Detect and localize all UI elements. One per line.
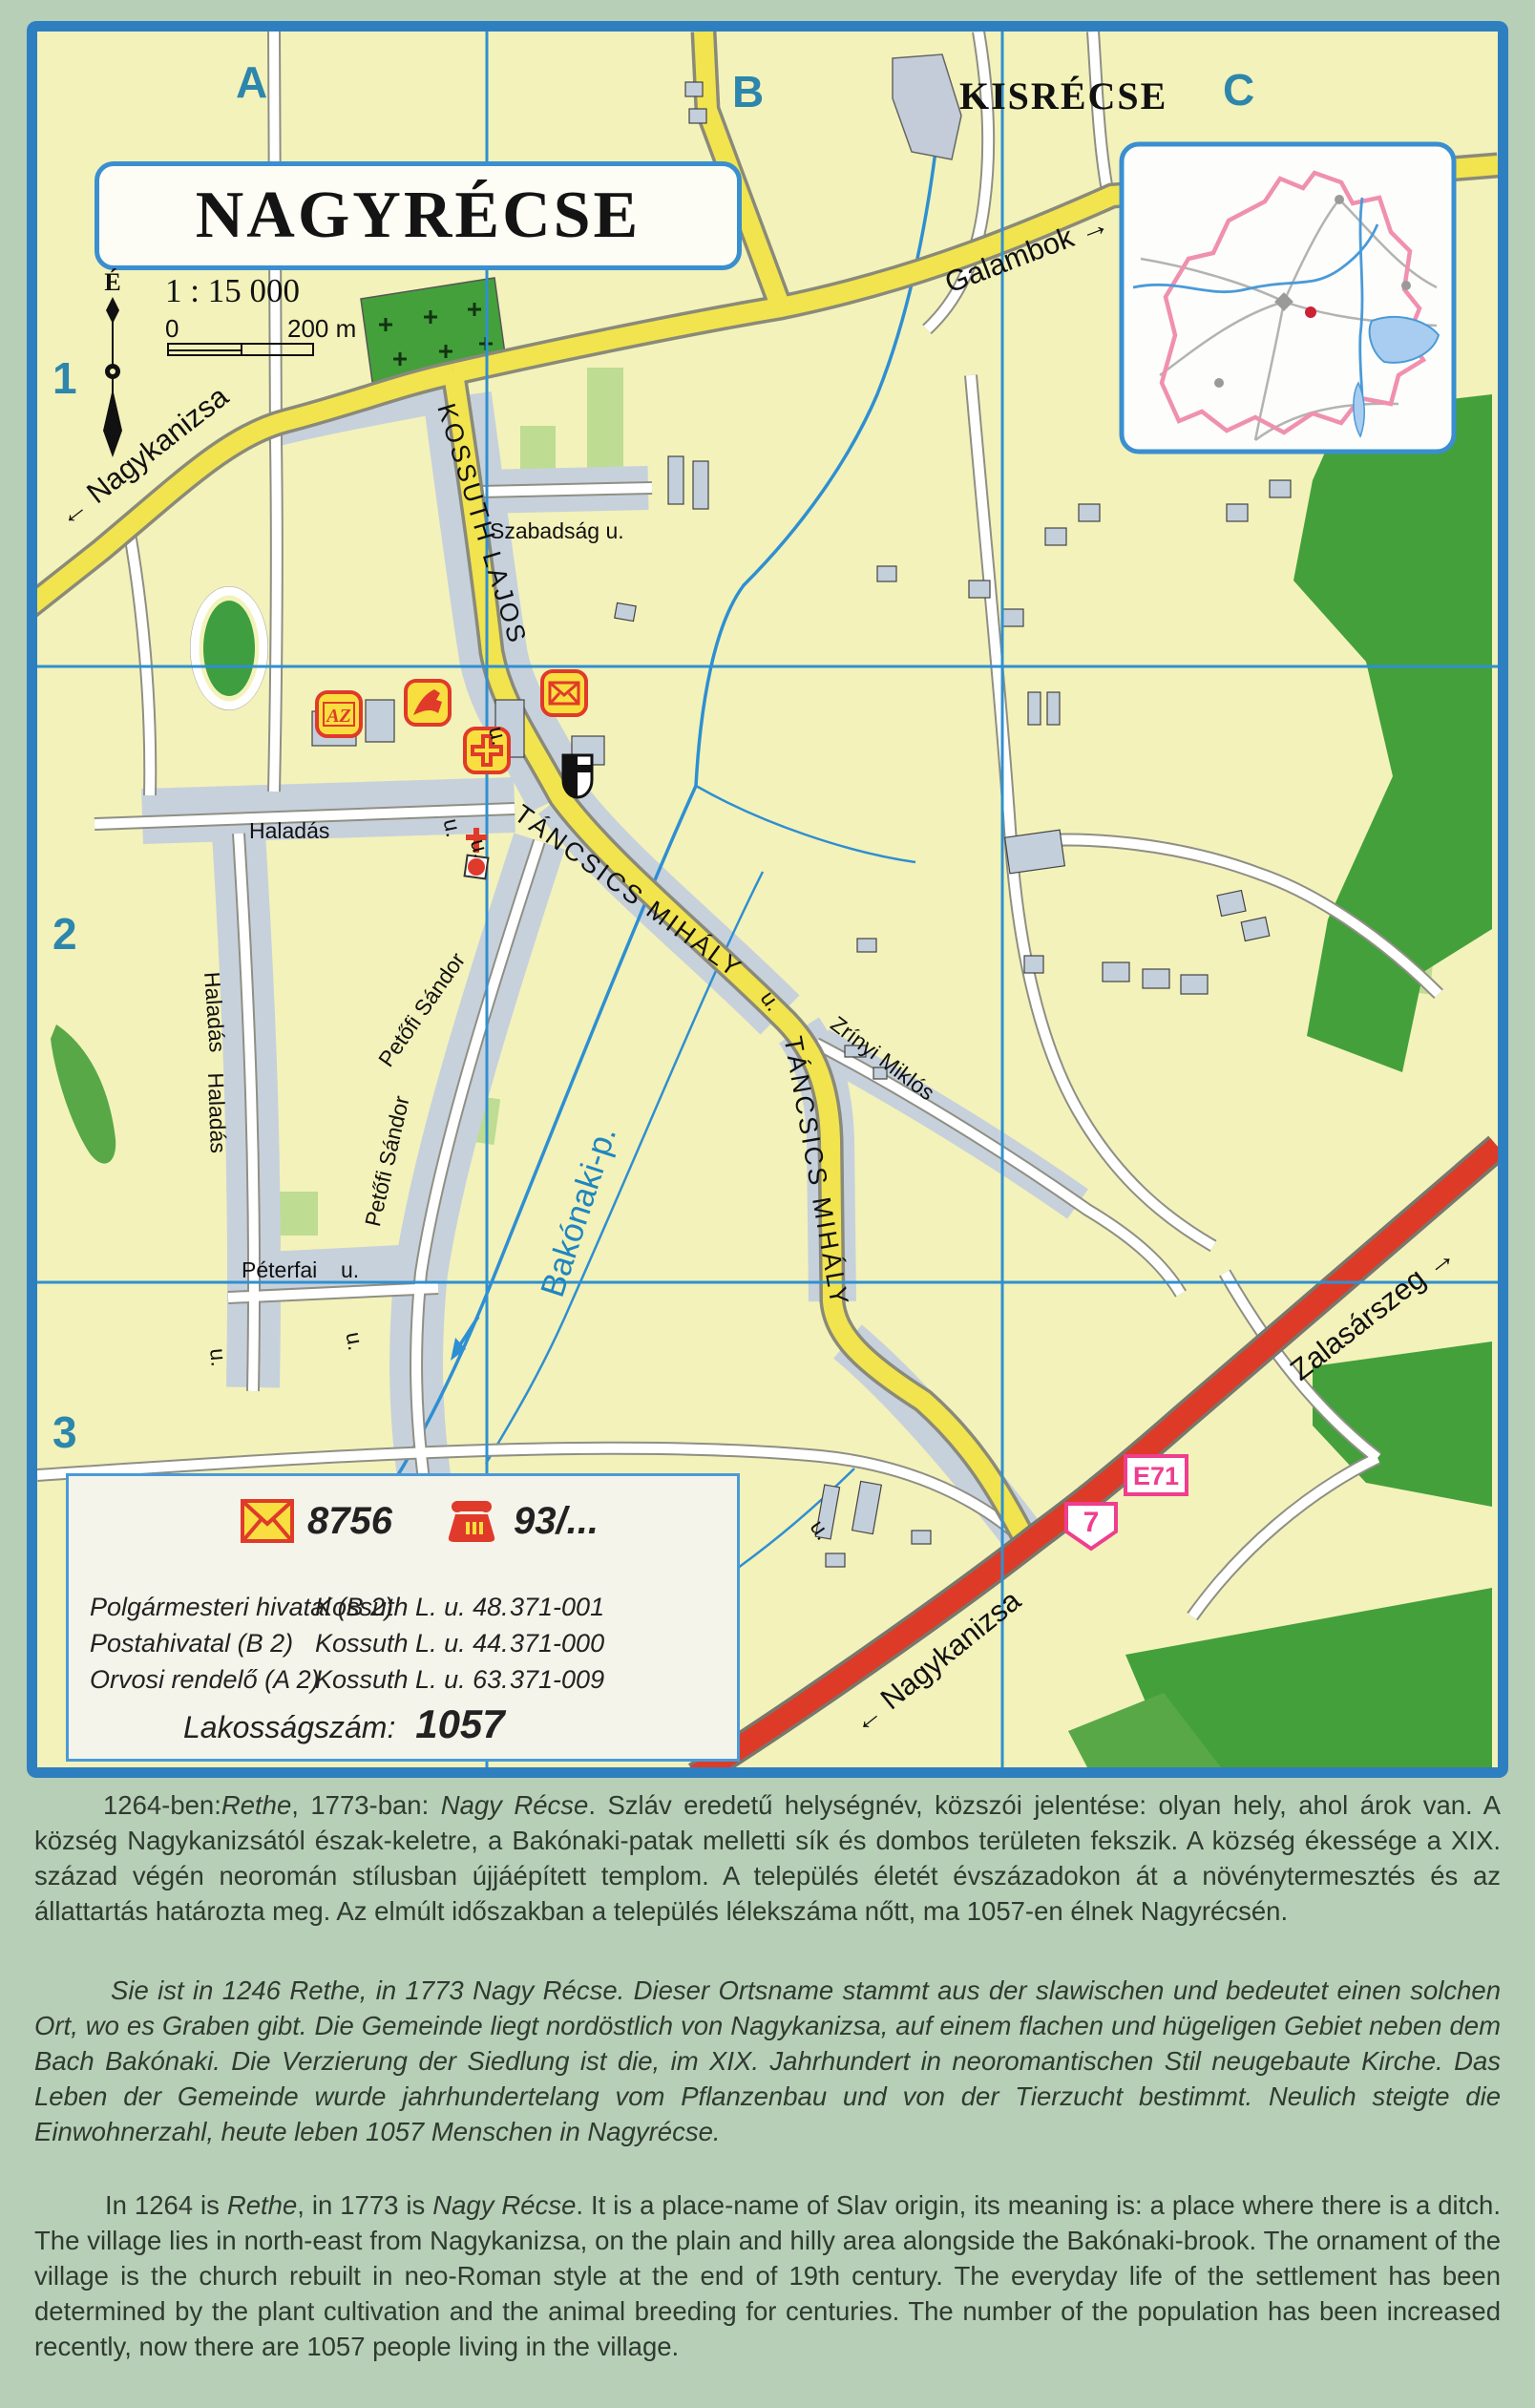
paragraph-hungarian: 1264-ben:Rethe, 1773-ban: Nagy Récse. Sz… bbox=[34, 1787, 1501, 1929]
poi-address: Kossuth L. u. 48. bbox=[315, 1593, 509, 1622]
poi-phone: 371-000 bbox=[510, 1629, 604, 1658]
svg-text:7: 7 bbox=[1083, 1507, 1100, 1538]
phone-prefix: 93/... bbox=[514, 1500, 599, 1543]
poi-address: Kossuth L. u. 44. bbox=[315, 1629, 509, 1658]
landmark-icon bbox=[406, 681, 450, 725]
poi-phone: 371-009 bbox=[510, 1665, 604, 1695]
population-line: Lakosságszám: 1057 bbox=[183, 1701, 505, 1747]
phone-icon bbox=[443, 1499, 500, 1543]
post-office-icon bbox=[542, 671, 586, 715]
postal-envelope-icon bbox=[241, 1499, 294, 1543]
medical-icon bbox=[465, 729, 509, 772]
pond bbox=[893, 54, 961, 159]
compass-needle bbox=[98, 297, 127, 457]
caption-block: 1264-ben:Rethe, 1773-ban: Nagy Récse. Sz… bbox=[34, 1787, 1501, 2408]
compass-north-letter: É bbox=[96, 268, 129, 297]
scale-block: 1 : 15 000 0 200 m bbox=[165, 272, 385, 358]
poi-name: Orvosi rendelő (A 2) bbox=[90, 1665, 320, 1695]
map-title: NAGYRÉCSE bbox=[196, 178, 641, 254]
az-sign-icon: AZ bbox=[317, 692, 361, 736]
page: { "map": { "title": "NAGYRÉCSE", "scale_… bbox=[0, 0, 1535, 2387]
svg-text:E71: E71 bbox=[1133, 1462, 1179, 1490]
overview-inset-map bbox=[1122, 144, 1454, 452]
poi-name: Postahivatal (B 2) bbox=[90, 1629, 293, 1658]
poi-phone: 371-001 bbox=[510, 1593, 604, 1622]
postal-code: 8756 bbox=[307, 1500, 392, 1543]
map-title-box: NAGYRÉCSE bbox=[95, 161, 742, 270]
population-value: 1057 bbox=[415, 1701, 504, 1746]
scale-end-label: 200 m bbox=[287, 314, 356, 344]
legend-box: 8756 93/... Polgármesteri hivatal (B 2) … bbox=[66, 1473, 740, 1762]
paragraph-english: In 1264 is Rethe, in 1773 is Nagy Récse.… bbox=[34, 2187, 1501, 2364]
church-icon bbox=[465, 828, 489, 878]
e-road-badge: E71 bbox=[1125, 1456, 1187, 1494]
route-7-badge: 7 bbox=[1066, 1504, 1116, 1549]
compass-north-icon: É bbox=[96, 268, 129, 462]
poi-address: Kossuth L. u. 63. bbox=[315, 1665, 509, 1695]
monument-shield-icon bbox=[563, 755, 592, 797]
scale-ratio: 1 : 15 000 bbox=[165, 272, 385, 310]
scale-bar bbox=[167, 343, 314, 356]
paragraph-german: Sie ist in 1246 Rethe, in 1773 Nagy Récs… bbox=[34, 1973, 1501, 2149]
inset-village-marker bbox=[1305, 306, 1316, 318]
map-panel: AZ E71 7 bbox=[27, 21, 1508, 1778]
scale-zero-label: 0 bbox=[165, 314, 179, 344]
population-label: Lakosságszám: bbox=[183, 1710, 395, 1744]
svg-text:AZ: AZ bbox=[325, 706, 351, 727]
